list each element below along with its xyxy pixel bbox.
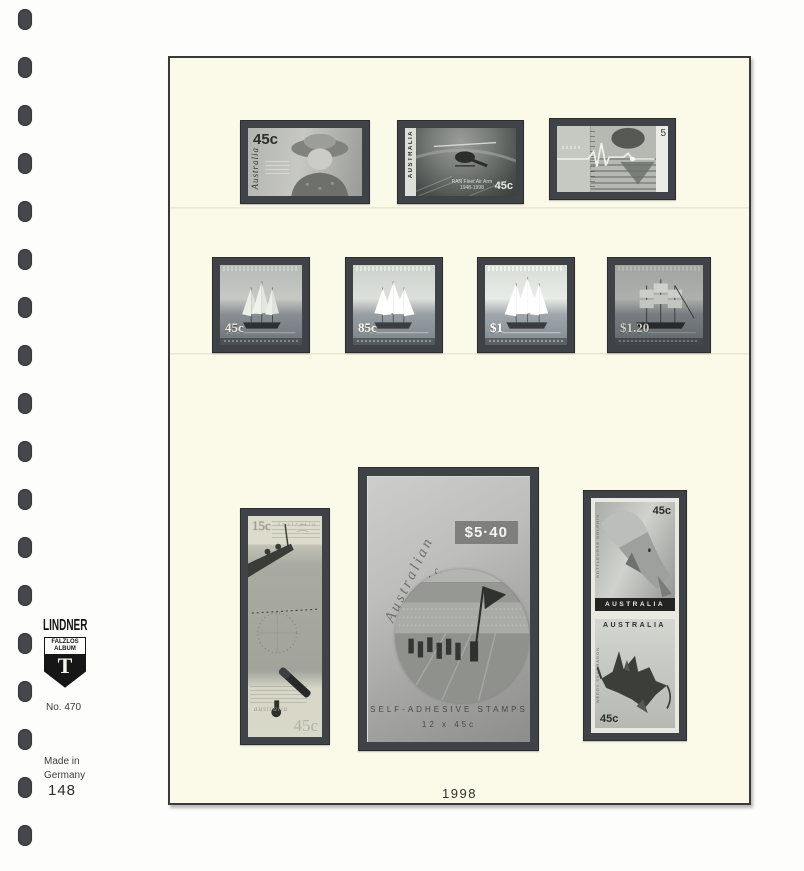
stamp-mount-olympic-booklet: Australian Olympic Legends $5·40: [358, 467, 539, 751]
binder-hole: [18, 57, 32, 78]
binder-hole: [18, 297, 32, 318]
badge-line2: ALBUM: [45, 646, 85, 653]
stamp-value-top: 15c: [252, 518, 271, 534]
caption-line2: 1948-1998: [452, 185, 493, 191]
stamp-value: 45c: [600, 713, 618, 725]
dolphin-stamp: 45c BOTTLENOSE DOLPHIN AUSTRALIA: [595, 502, 675, 611]
binder-hole: [18, 537, 32, 558]
falzlos-album-badge: FALZLOS ALBUM T: [44, 637, 86, 688]
ship-stamp-85c: 85c: [353, 265, 435, 345]
ship-stamp-120: $1.20: [615, 265, 703, 345]
stamp-country-top: Australia: [277, 522, 317, 528]
binder-hole: [18, 729, 32, 750]
binder-hole: [18, 825, 32, 846]
stamp-country: AUSTRALIA: [603, 622, 666, 629]
year-label: 1998: [170, 786, 749, 801]
stamp-mount-ship-1dollar: $1: [477, 257, 575, 353]
stamp-value: $1: [490, 320, 503, 336]
stamp-value: 45c: [253, 131, 278, 148]
album-page-photo: LINDNER FALZLOS ALBUM T No. 470 Made in …: [0, 0, 804, 871]
binder-hole: [18, 489, 32, 510]
stamp-country: Australia: [250, 147, 260, 190]
stamp-value: 45c: [495, 180, 513, 192]
reference-number: No. 470: [46, 702, 81, 713]
mount-strip-seam: [170, 353, 749, 355]
stamp-mount-explorer-pair: 15c Australia australia 45c: [240, 508, 330, 745]
helicopter-stamp: AUSTRALIA RAN Fleet Air Arm 1948-1998 45…: [405, 128, 516, 196]
ocean-pair-backing: 45c BOTTLENOSE DOLPHIN AUSTRALIA: [591, 498, 679, 733]
stamp-microtext: [265, 158, 289, 174]
page-number: 148: [48, 782, 76, 799]
stamp-country-strip: AUSTRALIA: [405, 128, 416, 196]
stamp-footer-band: [485, 338, 567, 345]
stamp-country-band: AUSTRALIA: [595, 598, 675, 611]
stamp-mount-ship-120: $1.20: [607, 257, 711, 353]
stamp-mount-ship-85c: 85c: [345, 257, 443, 353]
stamp-value: 85c: [358, 320, 377, 336]
booklet-footer: SELF-ADHESIVE STAMPS 12 x 45c: [368, 702, 530, 732]
ship-stamp-1dollar: $1: [485, 265, 567, 345]
binder-hole: [18, 345, 32, 366]
stamp-footer-band: [220, 338, 302, 345]
t-shield-icon: T: [44, 654, 86, 688]
ecg-heart-illustration: [557, 126, 668, 192]
stamp-caption: RAN Fleet Air Arm 1948-1998: [452, 179, 493, 192]
stamp-microtext: [562, 146, 580, 149]
album-sheet: 45c Australia AUSTRALIA: [168, 56, 751, 805]
binder-hole: [18, 201, 32, 222]
olympic-booklet-cover: Australian Olympic Legends $5·40: [367, 476, 530, 742]
ship-stamp-45c: 45c: [220, 265, 302, 345]
stamp-mount-ocean-pair: 45c BOTTLENOSE DOLPHIN AUSTRALIA: [583, 490, 687, 741]
lindner-logo: LINDNER: [43, 617, 87, 635]
binder-hole: [18, 681, 32, 702]
booklet-price: $5·40: [455, 521, 518, 544]
stamp-footer-band: [615, 338, 703, 345]
made-in-line2: Germany: [44, 769, 85, 783]
explorer-illustration: [248, 516, 322, 737]
stamp-mount-queen: 45c Australia: [240, 120, 370, 204]
queen-stamp: 45c Australia: [248, 128, 362, 196]
stamp-value: 45c: [653, 505, 671, 517]
binder-hole: [18, 105, 32, 126]
badge-letter: T: [58, 655, 73, 677]
binder-hole: [18, 393, 32, 414]
binder-hole: [18, 633, 32, 654]
made-in-label: Made in Germany: [44, 755, 85, 782]
binder-holes: [18, 9, 32, 846]
stadium-photo-circle: [395, 569, 529, 703]
stamp-mount-helicopter: AUSTRALIA RAN Fleet Air Arm 1948-1998 45…: [397, 120, 524, 204]
stamp-footer-band: [353, 338, 435, 345]
species-microtext: BOTTLENOSE DOLPHIN: [595, 514, 600, 578]
binder-hole: [18, 9, 32, 30]
seadragon-illustration: [595, 619, 675, 728]
stamp-country: AUSTRALIA: [605, 601, 665, 608]
binder-hole: [18, 585, 32, 606]
booklet-footer-line2: 12 x 45c: [368, 717, 530, 732]
stamp-mount-ship-45c: 45c: [212, 257, 310, 353]
badge-text: FALZLOS ALBUM: [44, 637, 86, 654]
binder-hole: [18, 441, 32, 462]
made-in-line1: Made in: [44, 755, 85, 769]
mount-strip-seam: [170, 207, 749, 209]
seadragon-stamp: AUSTRALIA WEEDY SEADRAGON 45c: [595, 619, 675, 728]
dolphin-illustration: [595, 502, 675, 611]
stamp-value-digit: 5: [660, 128, 666, 139]
stamp-mount-heart: 5: [549, 118, 676, 200]
badge-line1: FALZLOS: [45, 639, 85, 646]
stamp-value: $1.20: [620, 320, 649, 336]
stamp-country: AUSTRALIA: [408, 130, 414, 178]
binder-hole: [18, 777, 32, 798]
stamp-right-strip: 5: [656, 126, 668, 192]
stamp-value-bottom: 45c: [293, 716, 318, 736]
explorer-pair-stamp: 15c Australia australia 45c: [248, 516, 322, 737]
caption-line1: RAN Fleet Air Arm: [452, 179, 493, 185]
heart-ecg-stamp: 5: [557, 126, 668, 192]
binder-hole: [18, 153, 32, 174]
stadium-illustration: [395, 569, 529, 703]
species-microtext: WEEDY SEADRAGON: [595, 647, 600, 703]
binder-hole: [18, 249, 32, 270]
stamp-country-bottom: australia: [254, 705, 288, 713]
booklet-footer-line1: SELF-ADHESIVE STAMPS: [368, 702, 530, 717]
stamp-value: 45c: [225, 320, 244, 336]
